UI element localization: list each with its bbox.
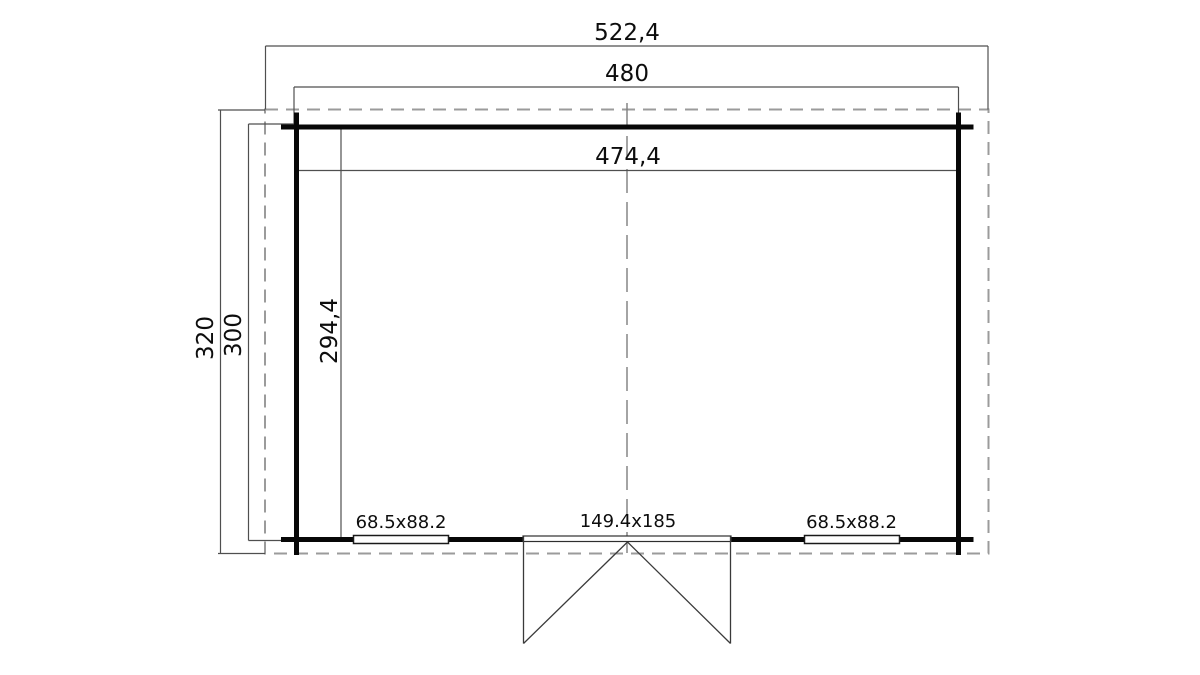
dim-label-wall-depth: 300 <box>221 313 247 357</box>
window-right-label: 68.5x88.2 <box>806 512 897 533</box>
dim-label-overall-depth: 320 <box>193 316 219 360</box>
dim-label-overall-width: 522,4 <box>594 20 660 46</box>
door-leaf-left <box>524 542 628 644</box>
door-lintel <box>523 536 731 542</box>
door-label: 149.4x185 <box>580 511 677 532</box>
dim-label-interior-depth: 294,4 <box>317 298 343 364</box>
floor-plan-canvas: 522,4 480 474,4 320 300 294,4 68.5x88.2 … <box>0 0 1200 675</box>
floor-plan-drawing: 522,4 480 474,4 320 300 294,4 68.5x88.2 … <box>0 0 1200 675</box>
dim-label-interior-width: 474,4 <box>595 144 661 170</box>
dim-label-wall-width: 480 <box>605 61 649 87</box>
window-right <box>805 536 900 544</box>
window-left <box>354 536 449 544</box>
window-left-label: 68.5x88.2 <box>356 512 447 533</box>
door-leaf-right <box>628 542 731 644</box>
